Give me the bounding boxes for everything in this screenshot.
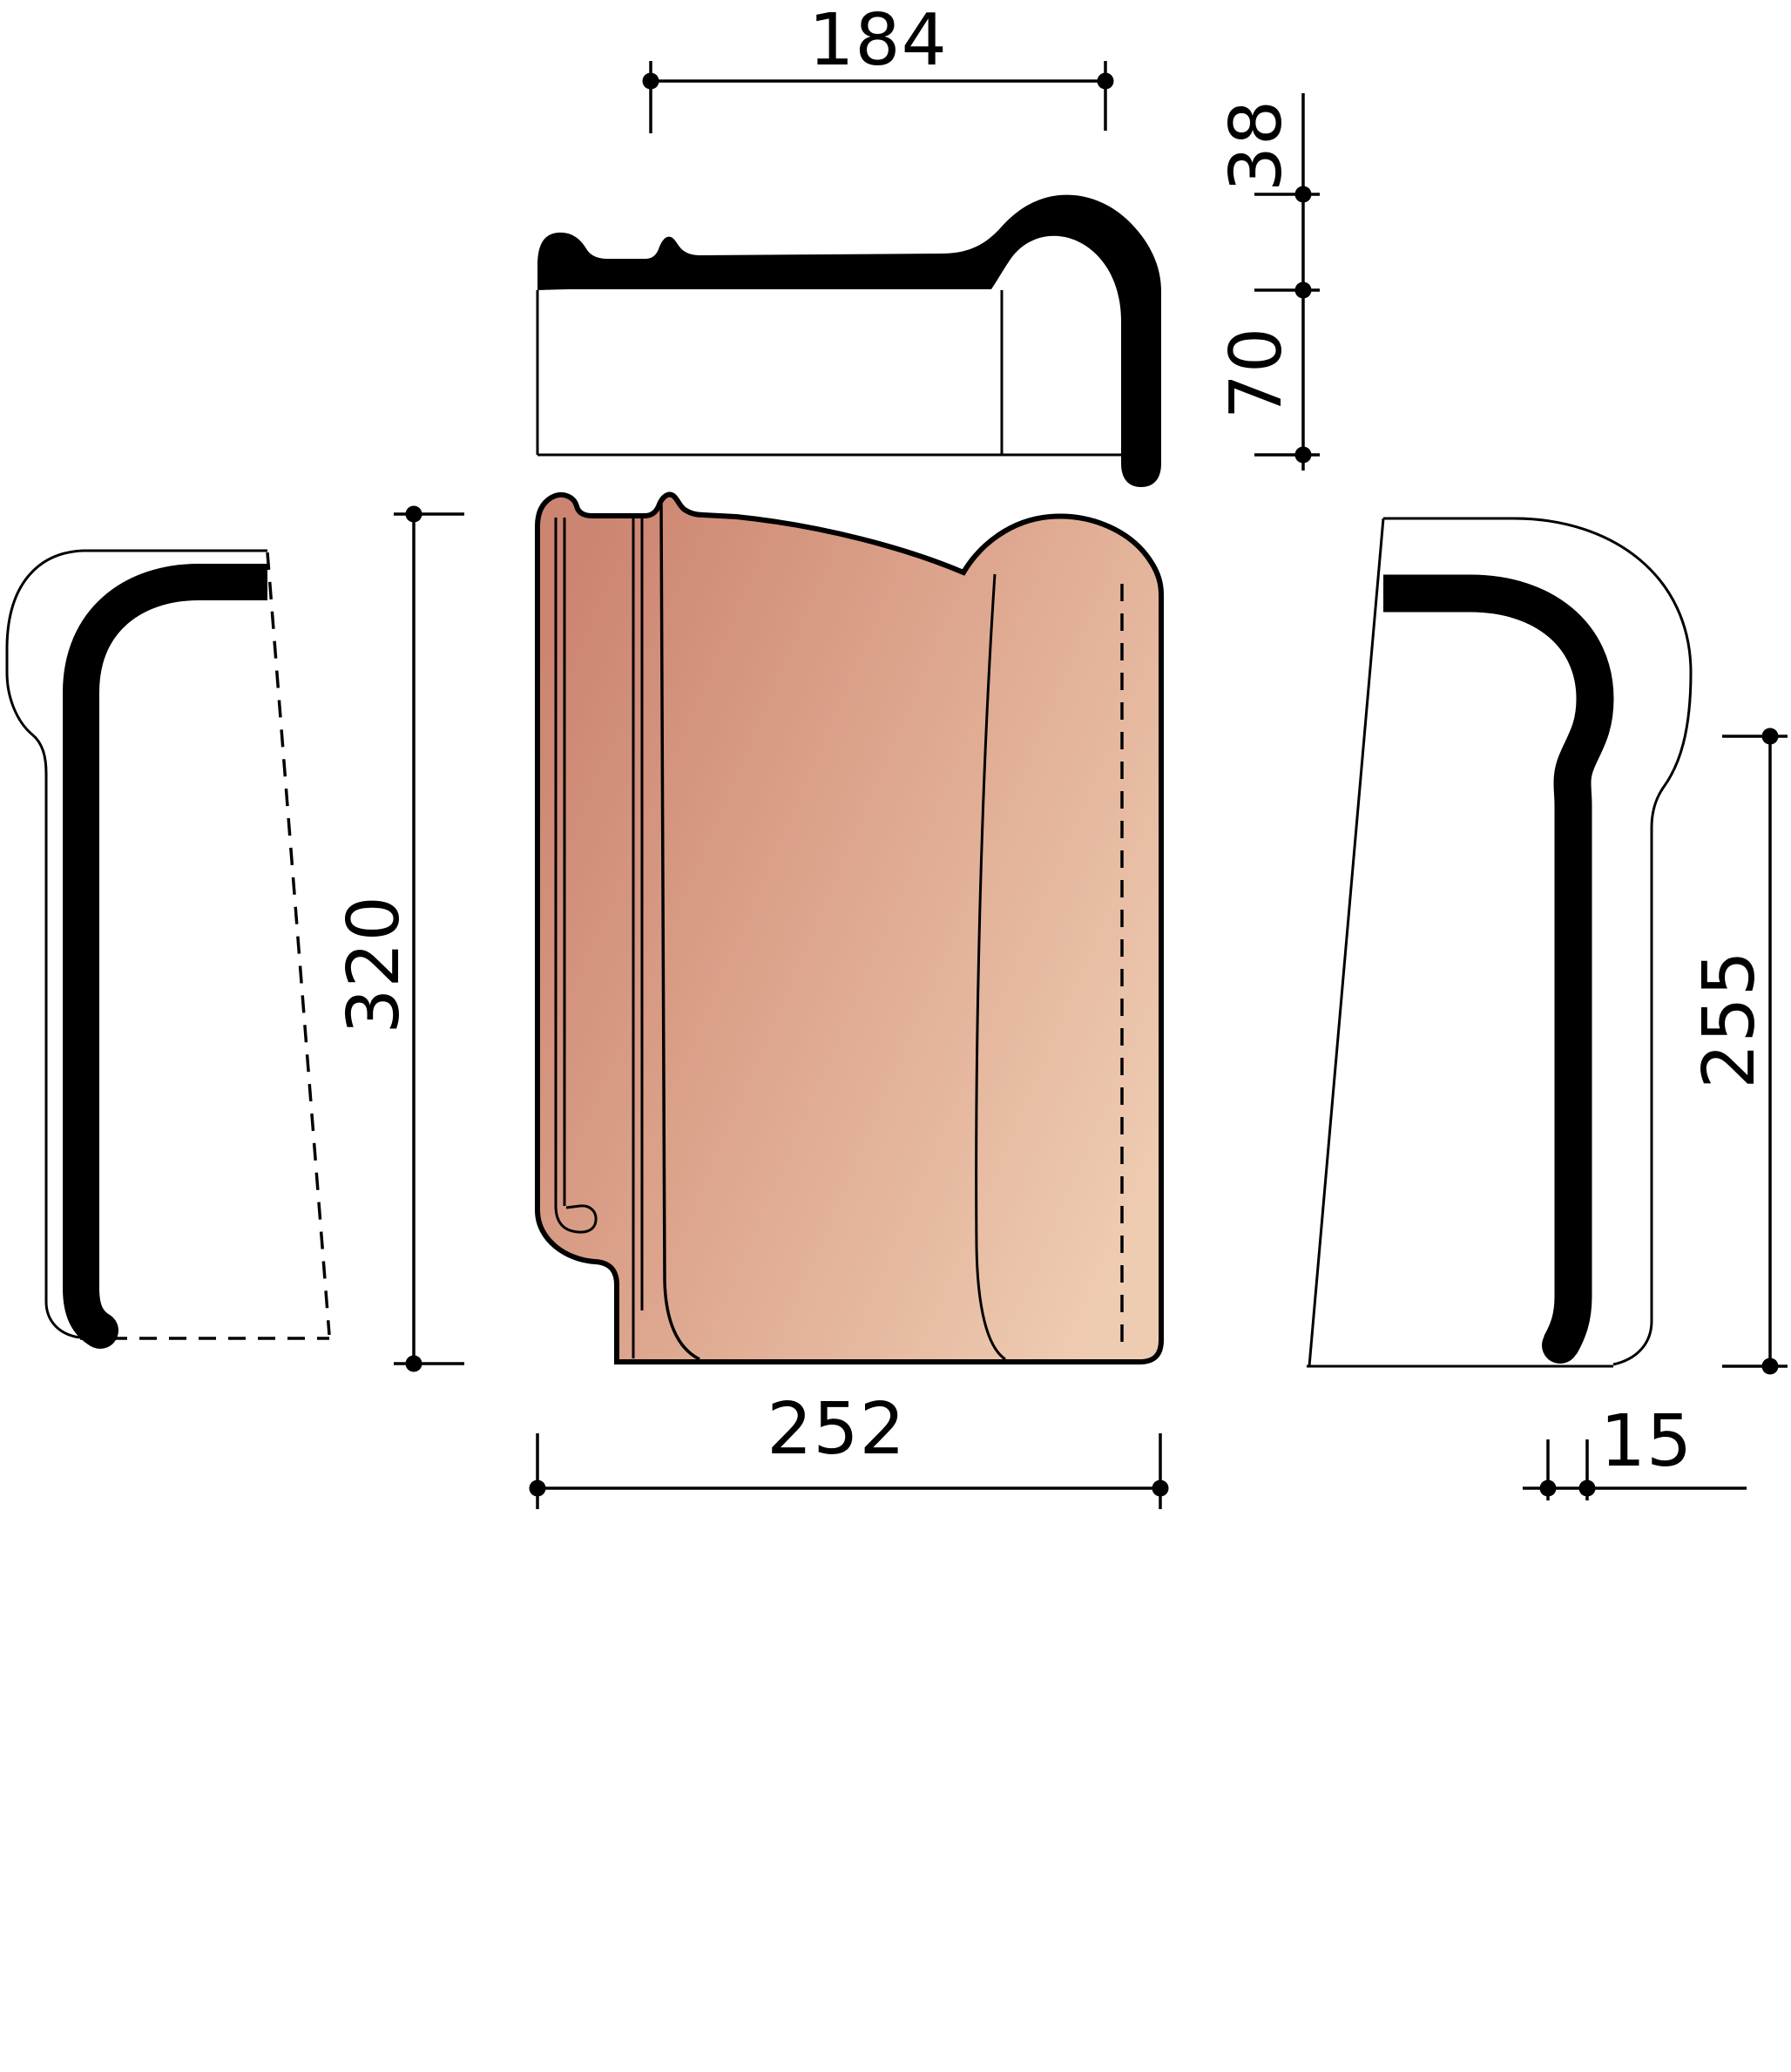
dimension-side-height: 255 bbox=[1688, 728, 1788, 1375]
front-view-tile-outline bbox=[537, 495, 1161, 1362]
dim-label-head-depth: 70 bbox=[1215, 327, 1298, 419]
right-view-section-toe bbox=[1542, 1327, 1578, 1364]
dim-label-width: 252 bbox=[767, 1388, 906, 1471]
left-view-section-stroke bbox=[81, 582, 267, 1331]
dim-label-cover-width: 184 bbox=[808, 0, 948, 82]
dim-label-length: 320 bbox=[333, 895, 416, 1034]
top-profile-section-view bbox=[537, 195, 1161, 487]
right-view-back-slant-edge bbox=[1309, 518, 1383, 1366]
dim-255-dot-top bbox=[1762, 728, 1779, 745]
dim-15-dot-right bbox=[1579, 1480, 1596, 1497]
left-view-section-toe bbox=[82, 1312, 118, 1349]
dimension-hook-and-head: 38 70 bbox=[1215, 93, 1320, 471]
dimension-thickness: 15 bbox=[1523, 1400, 1747, 1500]
dim-252-dot-right bbox=[1152, 1480, 1169, 1497]
dim-15-dot-left bbox=[1540, 1480, 1557, 1497]
dim-320-dot-bottom bbox=[406, 1356, 422, 1372]
top-view-section-profile bbox=[537, 195, 1161, 487]
dim-label-hook-height: 38 bbox=[1215, 99, 1298, 192]
dim-184-dot-right bbox=[1098, 73, 1114, 90]
dim-184-dot-left bbox=[643, 73, 659, 90]
dim-label-thickness: 15 bbox=[1600, 1400, 1693, 1483]
dim-255-dot-bottom bbox=[1762, 1358, 1779, 1375]
dim-252-dot-left bbox=[530, 1480, 546, 1497]
dimension-length: 320 bbox=[333, 506, 464, 1372]
front-view bbox=[537, 495, 1161, 1362]
dim-70-dot-bottom bbox=[1295, 447, 1312, 464]
left-side-view bbox=[7, 551, 329, 1349]
dim-label-side-height: 255 bbox=[1688, 950, 1771, 1089]
dimension-width: 252 bbox=[530, 1388, 1169, 1509]
right-view-outer-silhouette bbox=[1383, 518, 1691, 1364]
dim-320-dot-top bbox=[406, 506, 422, 523]
right-view-section-stroke bbox=[1383, 593, 1595, 1345]
technical-drawing: 184 38 70 320 252 255 bbox=[0, 0, 1791, 2072]
drawing-sheet: 184 38 70 320 252 255 bbox=[0, 0, 1791, 2072]
dim-38-dot-bottom bbox=[1295, 282, 1312, 299]
right-side-view bbox=[1307, 518, 1691, 1366]
dimension-cover-width: 184 bbox=[643, 0, 1114, 133]
left-view-hidden-back-edge bbox=[267, 552, 329, 1335]
